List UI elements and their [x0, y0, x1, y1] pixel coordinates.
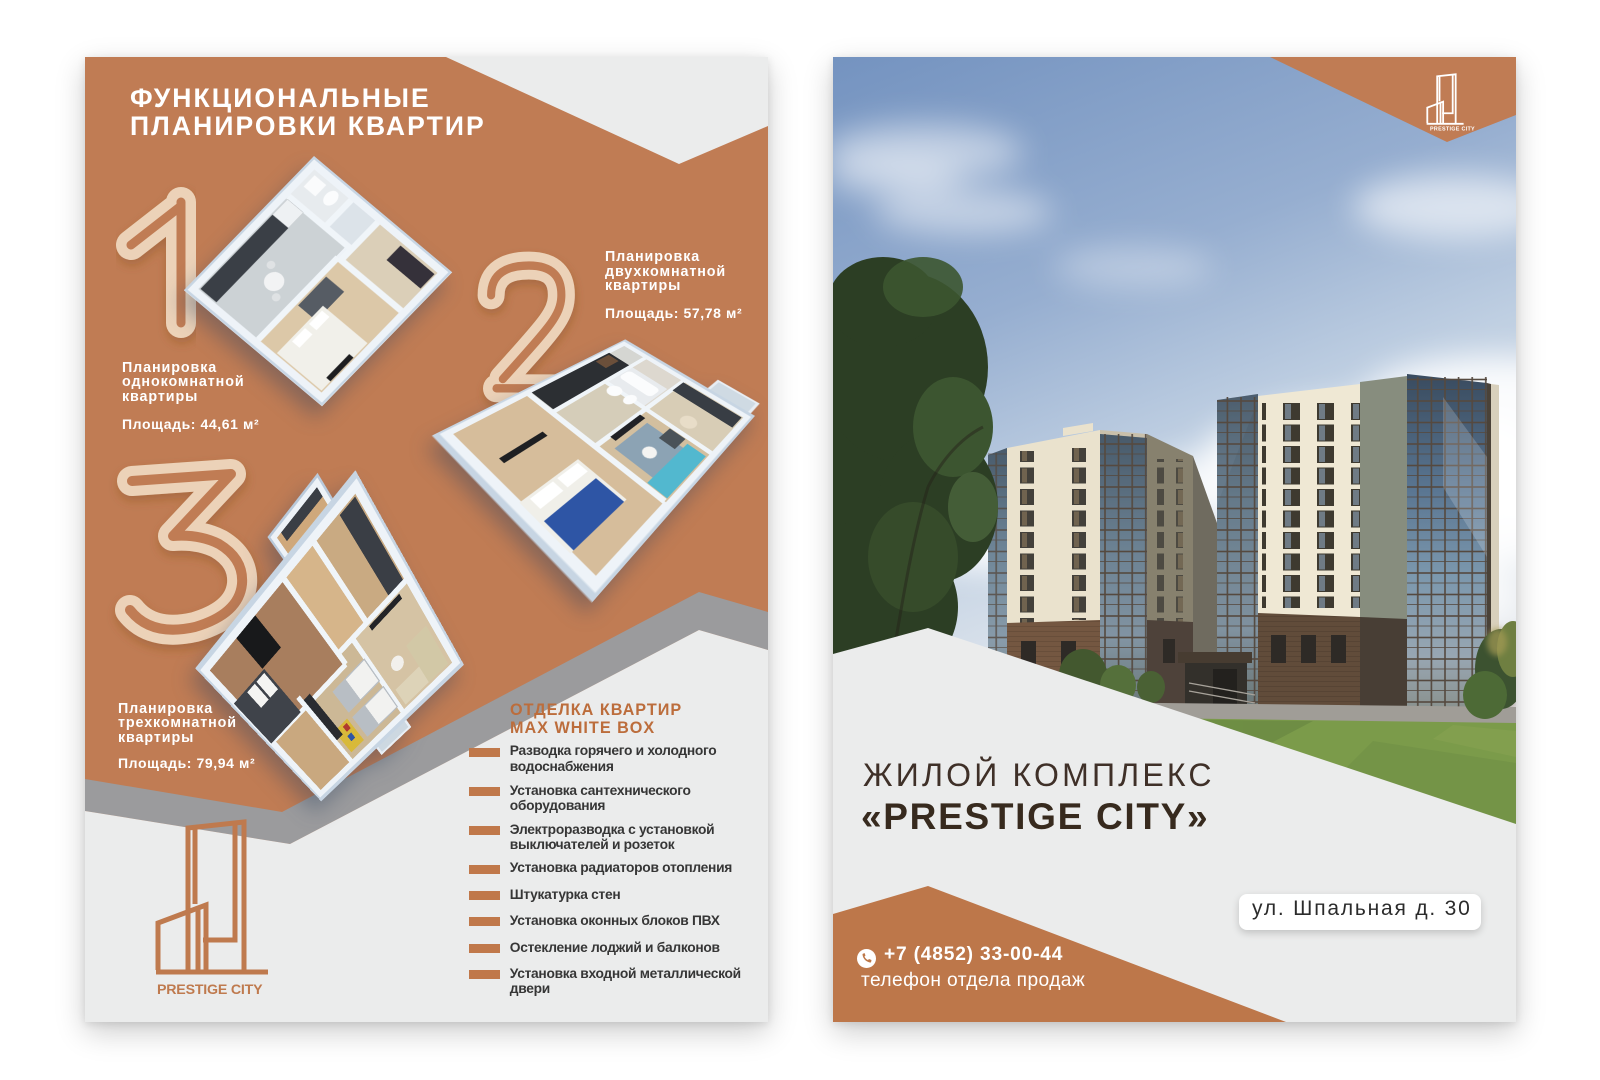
svg-text:PRESTIGE CITY: PRESTIGE CITY	[157, 982, 263, 998]
svg-text:PRESTIGE CITY: PRESTIGE CITY	[1430, 127, 1475, 133]
